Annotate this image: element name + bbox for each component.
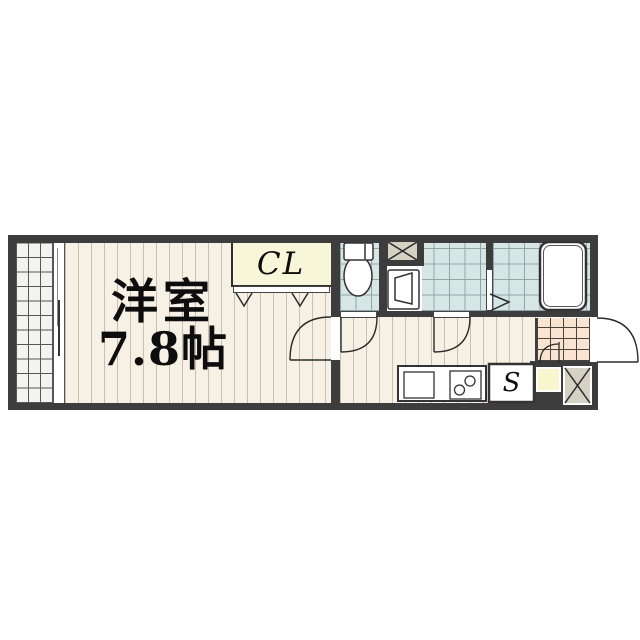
floor-plan: 洋室 7.8帖 CL S (0, 0, 640, 640)
wall-top (8, 235, 598, 243)
entrance-door-opening (590, 317, 598, 362)
wall-right-upper (590, 235, 598, 318)
western-room-size: 7.8帖 (65, 320, 261, 372)
balcony-window (53, 243, 65, 403)
wall-room-right-upper (331, 243, 340, 318)
wall-hall-top-a (377, 311, 433, 317)
bathroom-folding-door-leaf (486, 269, 493, 311)
washing-machine-pan (388, 242, 417, 260)
wall-bathroom-left (486, 243, 493, 270)
toilet-room-floor (340, 243, 379, 311)
wall-room-right-lower (331, 359, 340, 403)
balcony-floor (16, 243, 53, 403)
storage-label: S (489, 366, 534, 400)
wall-left (8, 235, 16, 410)
washbasin-niche (387, 264, 422, 311)
entrance-genkan-floor (537, 318, 590, 361)
entrance-door-swing (597, 318, 638, 362)
pipe-shaft (563, 366, 592, 405)
bathroom-floor (493, 243, 590, 311)
entrance-step-line (535, 318, 537, 361)
wall-hall-top-b (470, 311, 598, 317)
toilet-door-leaf (340, 311, 377, 318)
wall-bottom (8, 403, 598, 410)
shoe-box (536, 367, 561, 392)
washroom-door-leaf (433, 311, 470, 318)
closet-label: CL (233, 245, 329, 283)
room-door-opening (331, 317, 340, 360)
